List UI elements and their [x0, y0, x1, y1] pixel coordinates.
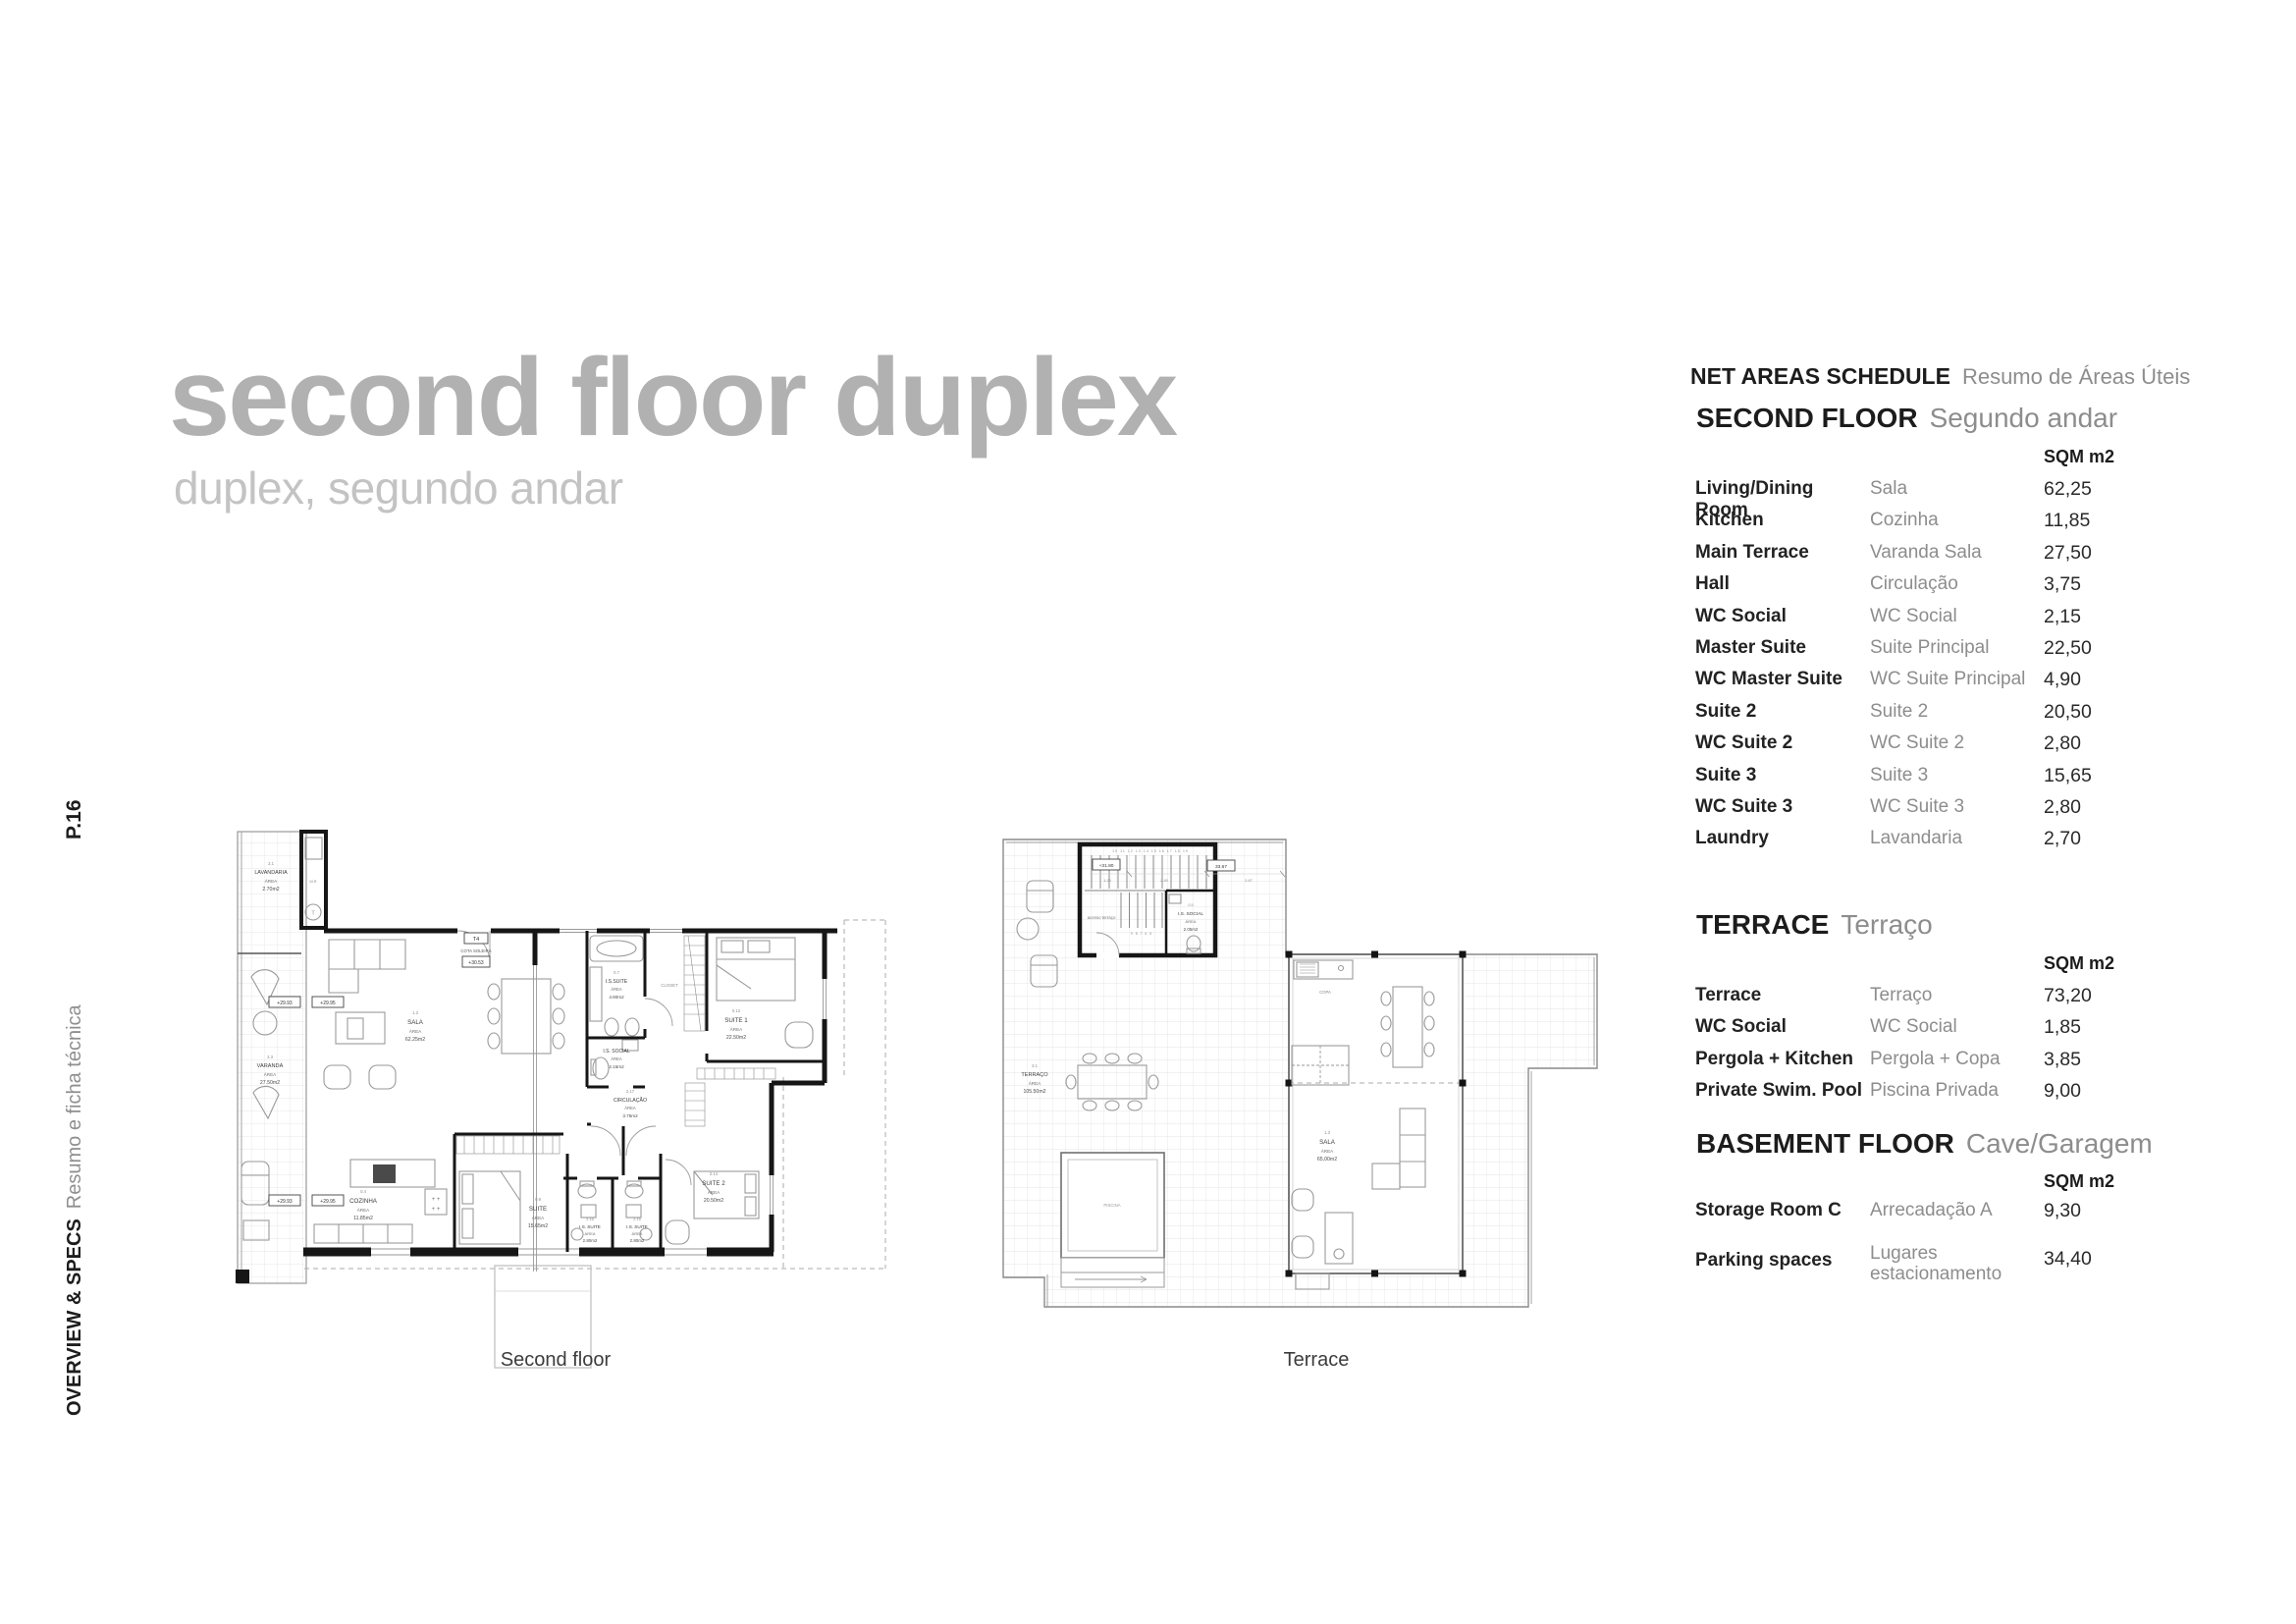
pergola-sala: COPA 1.3 SALA ÁREA 65,00m2 — [1286, 951, 1467, 1290]
row-value: 11,85 — [2044, 510, 2090, 532]
table-row: WC Master SuiteWC Suite Principal4,90 — [1695, 669, 2142, 700]
room-label-is-suite-right-name: I.S. SUITE — [626, 1224, 648, 1229]
table-row: WC SocialWC Social1,85 — [1695, 1016, 2142, 1048]
room-label-suite1-aw: ÁREA — [730, 1026, 743, 1032]
row-en: Terrace — [1695, 985, 1870, 1006]
terrace-rows: TerraceTerraço73,20 WC SocialWC Social1,… — [1695, 985, 2142, 1112]
room-label-is-suite-right-area: 2.80m2 — [630, 1238, 645, 1243]
schedule-title: NET AREAS SCHEDULEResumo de Áreas Úteis — [1690, 363, 2190, 390]
room-label-is-suite-left-aw: ÁREA — [585, 1231, 596, 1236]
section-name-pt: Segundo andar — [1930, 403, 2118, 433]
row-pt: Arrecadação A — [1870, 1200, 2044, 1220]
row-en: WC Suite 2 — [1695, 732, 1870, 754]
dim-3: 2.67 — [1245, 878, 1253, 883]
row-pt: Sala — [1870, 478, 2044, 499]
room-label-terrace-sala: 1.3 — [1324, 1130, 1330, 1135]
sqm-label-1: SQM m2 — [2044, 447, 2114, 467]
row-value: 62,25 — [2044, 478, 2092, 501]
room-label-is-suite-left: 2.16 — [586, 1218, 593, 1221]
dryer-letter: T — [311, 911, 315, 917]
cooktop — [373, 1164, 396, 1183]
table-row: Master SuiteSuite Principal22,50 — [1695, 637, 2142, 669]
walls — [303, 929, 837, 1272]
room-label-terrace-sala-aw: ÁREA — [1321, 1148, 1334, 1154]
cota-soleira-label: COTA SOLEIRA — [460, 948, 491, 953]
table-row: WC Suite 2WC Suite 22,80 — [1695, 732, 2142, 764]
table-row: LaundryLavandaria2,70 — [1695, 828, 2142, 859]
row-value: 20,50 — [2044, 701, 2092, 724]
net-areas-schedule: NET AREAS SCHEDULEResumo de Áreas Úteis … — [1690, 363, 2142, 1296]
room-label-suite1: 0.12 — [732, 1008, 741, 1013]
row-en: Master Suite — [1695, 637, 1870, 659]
room-label-lavandaria-name: LAVANDARIA — [254, 870, 288, 876]
dim-2: 2.40 — [1160, 878, 1168, 883]
row-pt: Varanda Sala — [1870, 542, 2044, 563]
row-en: Suite 2 — [1695, 701, 1870, 723]
row-value: 15,65 — [2044, 765, 2092, 787]
table-row: WC Suite 3WC Suite 32,80 — [1695, 796, 2142, 828]
row-pt: WC Social — [1870, 1016, 2044, 1037]
copa-label: COPA — [1319, 990, 1331, 995]
row-pt: Lugares estacionamento — [1870, 1243, 2017, 1284]
row-en: Laundry — [1695, 828, 1870, 849]
sqm-label-3: SQM m2 — [2044, 1171, 2114, 1192]
row-value: 34,40 — [2044, 1243, 2092, 1271]
level-marker: +29.93 — [277, 1199, 293, 1205]
level-marker: +29.93 — [277, 1001, 293, 1006]
row-pt: Lavandaria — [1870, 828, 2044, 848]
terrace-level-marker: +31.80 — [1099, 863, 1114, 869]
section-name-en: SECOND FLOOR — [1696, 403, 1918, 433]
room-label-suite: 0.9 — [535, 1197, 541, 1202]
floor-plan-second-floor: T M.R + + — [226, 830, 888, 1375]
room-label-cozinha-aw: ÁREA — [357, 1207, 370, 1213]
row-en: WC Suite 3 — [1695, 796, 1870, 818]
room-label-varanda-area: 27.50m2 — [260, 1080, 280, 1086]
page-number: P.16 — [63, 761, 88, 839]
room-label-is-suite-top-name: I.S.SUITE — [606, 979, 628, 985]
washer — [305, 838, 322, 859]
table-row: Parking spacesLugares estacionamento34,4… — [1695, 1243, 2142, 1286]
room-label-varanda: 2.3 — [267, 1055, 273, 1059]
row-pt: Suite 2 — [1870, 701, 2044, 722]
row-value: 3,85 — [2044, 1049, 2081, 1071]
wardrobes — [456, 936, 775, 1154]
level-marker: +29.95 — [320, 1001, 336, 1006]
table-row: KitchenCozinha11,85 — [1695, 510, 2142, 541]
room-label-terraco-aw: ÁREA — [1029, 1080, 1041, 1086]
section-head-second-floor: SECOND FLOORSegundo andar — [1696, 403, 2117, 434]
room-label-is-suite-top: 0.7 — [614, 970, 619, 975]
plan-caption-terrace: Terrace — [1199, 1349, 1434, 1372]
floor-plan-terrace: 10 11 12 13 14 15 16 17 18 19 9 8 7 6 5 … — [1001, 830, 1605, 1321]
schedule-title-pt: Resumo de Áreas Úteis — [1962, 364, 2190, 389]
mr-label: M.R — [310, 880, 317, 884]
bed-suite2 — [694, 1171, 759, 1218]
table-row: TerraceTerraço73,20 — [1695, 985, 2142, 1016]
room-label-is-social-aw: ÁREA — [611, 1056, 622, 1061]
schedule-title-en: NET AREAS SCHEDULE — [1690, 363, 1950, 389]
row-value: 9,00 — [2044, 1080, 2081, 1103]
room-label-cozinha-area: 11.85m2 — [353, 1216, 373, 1221]
room-label-terraco-area: 105.50m2 — [1023, 1089, 1045, 1095]
row-pt: Piscina Privada — [1870, 1080, 2044, 1101]
row-en: Kitchen — [1695, 510, 1870, 531]
bed-suite1 — [717, 938, 795, 1001]
row-en: Parking spaces — [1695, 1243, 1870, 1272]
room-label-suite1-area: 22.50m2 — [726, 1035, 746, 1041]
row-value: 3,75 — [2044, 573, 2081, 596]
row-en: WC Social — [1695, 606, 1870, 627]
row-en: WC Social — [1695, 1016, 1870, 1038]
table-row: HallCirculação3,75 — [1695, 573, 2142, 605]
room-label-is-suite-left-area: 2.80m2 — [583, 1238, 598, 1243]
acesso-terraco-label: acesso terraço — [1088, 915, 1116, 920]
room-label-circulacao: 2.17 — [626, 1089, 635, 1094]
room-label-suite-aw: ÁREA — [532, 1215, 545, 1220]
room-label-circulacao-area: 3.75m2 — [622, 1113, 638, 1118]
stair-numbers-bottom: 9 8 7 6 5 — [1131, 932, 1152, 936]
room-label-lavandaria-aw: ÁREA — [265, 878, 278, 884]
cota-soleira-value: +30.53 — [468, 960, 484, 966]
room-label-cozinha: 0.4 — [360, 1189, 366, 1194]
level-marker: +29.95 — [320, 1199, 336, 1205]
section-name-pt: Terraço — [1841, 909, 1932, 940]
svg-text:+ +: + + — [432, 1207, 441, 1213]
table-row: Main TerraceVaranda Sala27,50 — [1695, 542, 2142, 573]
toilet — [593, 1057, 609, 1079]
room-label-terrace-sala-name: SALA — [1319, 1139, 1336, 1146]
svg-text:+ +: + + — [432, 1197, 441, 1203]
sidebar-section-label: OVERVIEW & SPECSResumo e ficha técnica — [64, 947, 87, 1416]
section-name-en: TERRACE — [1696, 909, 1829, 940]
basement-rows: Storage Room CArrecadação A9,30 Parking … — [1695, 1200, 2142, 1286]
room-label-varanda-name: VARANDA — [257, 1063, 284, 1069]
room-label-suite2: 2.14 — [710, 1171, 719, 1176]
room-label-wc-social-area: 2.05m2 — [1184, 927, 1199, 932]
table-row: Suite 2Suite 220,50 — [1695, 701, 2142, 732]
row-pt: Circulação — [1870, 573, 2044, 594]
row-value: 27,50 — [2044, 542, 2092, 565]
row-pt: Pergola + Copa — [1870, 1049, 2044, 1069]
room-label-is-suite-left-name: I.S. SUITE — [579, 1224, 601, 1229]
row-pt: WC Suite 3 — [1870, 796, 2044, 817]
room-label-lavandaria: 2.1 — [268, 861, 274, 866]
dashed-boundary — [304, 920, 885, 1269]
table-row: Pergola + KitchenPergola + Copa3,85 — [1695, 1049, 2142, 1080]
room-label-suite1-name: SUITE 1 — [724, 1017, 748, 1024]
row-value: 4,90 — [2044, 669, 2081, 691]
plan-caption-second-floor: Second floor — [438, 1349, 673, 1372]
row-pt: Cozinha — [1870, 510, 2044, 530]
dining-table — [502, 979, 551, 1054]
row-value: 2,80 — [2044, 732, 2081, 755]
sqm-label-2: SQM m2 — [2044, 953, 2114, 974]
page-title: second floor duplex — [169, 334, 1176, 460]
room-label-cozinha-name: COZINHA — [349, 1198, 378, 1205]
row-value: 9,30 — [2044, 1200, 2081, 1222]
room-label-sala-aw: ÁREA — [409, 1028, 422, 1034]
room-label-wc-social: 0.5 — [1188, 903, 1193, 907]
table-row: WC SocialWC Social2,15 — [1695, 606, 2142, 637]
row-en: Main Terrace — [1695, 542, 1870, 564]
stair-numbers-top: 10 11 12 13 14 15 16 17 18 19 — [1112, 849, 1189, 853]
room-label-is-suite-right-aw: ÁREA — [632, 1231, 643, 1236]
bathtub — [590, 936, 643, 961]
section-head-basement: BASEMENT FLOORCave/Garagem — [1696, 1128, 2153, 1160]
room-label-suite-name: SUITE — [529, 1206, 547, 1213]
room-label-terraco: 3.1 — [1032, 1063, 1038, 1068]
room-label-suite2-name: SUITE 2 — [702, 1180, 725, 1187]
room-label-is-social-area: 2.15m2 — [609, 1064, 624, 1069]
room-label-terrace-sala-area: 65,00m2 — [1317, 1157, 1337, 1163]
row-value: 22,50 — [2044, 637, 2092, 660]
room-label-terraco-name: TERRAÇO — [1021, 1072, 1048, 1078]
sidebar-section-pt: Resumo e ficha técnica — [64, 1004, 85, 1209]
room-label-varanda-aw: ÁREA — [264, 1071, 277, 1077]
row-value: 1,85 — [2044, 1016, 2081, 1039]
sidebar-section-en: OVERVIEW & SPECS — [64, 1218, 85, 1416]
row-pt: Terraço — [1870, 985, 2044, 1005]
row-value: 2,70 — [2044, 828, 2081, 850]
room-label-suite2-area: 20.50m2 — [704, 1198, 723, 1204]
page-subtitle: duplex, segundo andar — [174, 461, 623, 514]
swimming-pool: PISCINA — [1061, 1153, 1164, 1287]
row-pt: Suite Principal — [1870, 637, 2044, 658]
room-label-circulacao-name: CIRCULAÇÃO — [614, 1097, 647, 1104]
dim-1: 1.20 — [1103, 878, 1111, 883]
room-label-lavandaria-area: 2.70m2 — [262, 887, 279, 893]
room-label-sala: 1.3 — [412, 1010, 418, 1015]
row-en: Private Swim. Pool — [1695, 1080, 1870, 1102]
bed-suite — [459, 1171, 520, 1244]
t4-marker: T4 — [473, 937, 479, 943]
room-label-wc-social-name: I.S. SOCIAL — [1178, 911, 1203, 917]
row-en: Pergola + Kitchen — [1695, 1049, 1870, 1070]
room-label-closet: CLOSET — [661, 983, 678, 988]
second-floor-rows: Living/Dining RoomSala62,25 KitchenCozin… — [1695, 478, 2142, 860]
section-head-terrace: TERRACETerraço — [1696, 909, 1933, 941]
table-row: Storage Room CArrecadação A9,30 — [1695, 1200, 2142, 1243]
row-en: Storage Room C — [1695, 1200, 1870, 1221]
corner-pillar — [236, 1270, 249, 1283]
room-label-circulacao-aw: ÁREA — [624, 1106, 636, 1110]
room-label-sala-area: 62.25m2 — [405, 1037, 425, 1043]
row-pt: WC Suite Principal — [1870, 669, 2044, 689]
row-value: 2,80 — [2044, 796, 2081, 819]
room-label-is-suite-top-area: 4.90m2 — [609, 995, 624, 1000]
room-label-suite-area: 15.65m2 — [528, 1223, 548, 1229]
room-label-suite2-aw: ÁREA — [708, 1189, 721, 1195]
row-pt: Suite 3 — [1870, 765, 2044, 785]
table-row: Suite 3Suite 315,65 — [1695, 765, 2142, 796]
row-en: Suite 3 — [1695, 765, 1870, 786]
room-label-is-suite-right: 2.15 — [633, 1218, 640, 1221]
section-name-pt: Cave/Garagem — [1966, 1128, 2153, 1159]
row-value: 2,15 — [2044, 606, 2081, 628]
dim-total: 33.67 — [1215, 864, 1227, 870]
table-row: Private Swim. PoolPiscina Privada9,00 — [1695, 1080, 2142, 1111]
row-en: WC Master Suite — [1695, 669, 1870, 690]
row-value: 73,20 — [2044, 985, 2092, 1007]
room-label-is-social: I.S. SOCIAL — [603, 1049, 629, 1055]
room-label-wc-social-aw: ÁREA — [1186, 919, 1197, 924]
row-en: Hall — [1695, 573, 1870, 595]
table-row: Living/Dining RoomSala62,25 — [1695, 478, 2142, 510]
row-pt: WC Social — [1870, 606, 2044, 626]
row-pt: WC Suite 2 — [1870, 732, 2044, 753]
section-name-en: BASEMENT FLOOR — [1696, 1128, 1954, 1159]
room-label-sala-name: SALA — [407, 1019, 424, 1026]
room-label-is-suite-top-aw: ÁREA — [611, 987, 622, 992]
piscina-label: PISCINA — [1103, 1203, 1120, 1208]
